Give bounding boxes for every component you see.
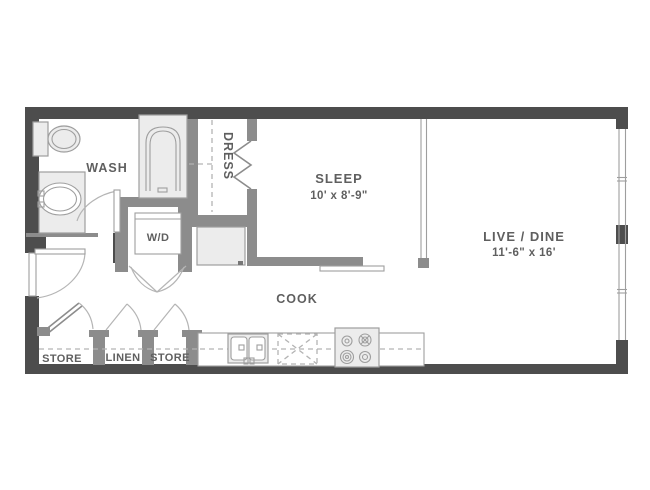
wall-dress-bottom (187, 215, 257, 227)
wall-right-mid-block (616, 225, 628, 244)
closet-post1 (93, 330, 105, 365)
wash-door-leaf (114, 190, 120, 232)
vanity-sink (38, 172, 85, 233)
kitchen (198, 328, 424, 367)
cook-label: COOK (276, 292, 318, 306)
toilet-tank (33, 122, 48, 156)
floorplan-page: WASH DRESS SLEEP 10' x 8'-9" LIVE / DINE… (0, 0, 650, 490)
wall-left-lower (25, 296, 39, 374)
wall-dress-right-lower (247, 189, 257, 258)
wall-top (25, 107, 628, 119)
sink-basin-outer (39, 183, 81, 215)
dress-bifold-door (234, 141, 251, 189)
entry-door-leaf-line2 (47, 306, 82, 334)
entry-door-leaf-line1 (44, 303, 79, 331)
wall-dress-right-upper (247, 119, 257, 141)
wall-right-top-corner (616, 107, 628, 129)
floorplan-drawing: WASH DRESS SLEEP 10' x 8'-9" LIVE / DINE… (0, 0, 650, 490)
stove (335, 328, 379, 367)
wd-door-leaf-left (129, 266, 157, 292)
toilet (33, 122, 80, 156)
washer-dryer-label: W/D (147, 232, 170, 244)
linen-door-arc (127, 304, 141, 330)
live-dine-label: LIVE / DINE (483, 229, 565, 244)
wash-label: WASH (86, 161, 128, 175)
store-right-label: STORE (150, 352, 190, 364)
sleep-sliding-door (320, 266, 384, 271)
bathtub (139, 115, 187, 198)
refrigerator (197, 227, 245, 265)
wall-divider-cap (418, 258, 429, 268)
sleep-label: SLEEP (315, 171, 363, 186)
store-right-door-arc (175, 304, 189, 330)
live-dine-dimensions: 11'-6" x 16' (492, 247, 556, 259)
wall-right-bottom-corner (616, 340, 628, 374)
hall-door-arc (37, 253, 85, 298)
dress-label: DRESS (221, 132, 235, 180)
wall-sleep-bottom (247, 257, 363, 266)
store-left-label: STORE (42, 353, 82, 365)
store-right-door-leaf (154, 304, 175, 330)
wd-door-leaf-right (157, 266, 186, 292)
linen-label: LINEN (106, 352, 141, 364)
fridge-box (197, 227, 245, 265)
linen-door-leaf (106, 304, 127, 330)
hall-door-leaf (35, 249, 85, 254)
fridge-handle (238, 261, 243, 265)
wall-bath-south (26, 233, 98, 237)
window-left-wall (29, 253, 36, 296)
sleep-dimensions: 10' x 8'-9" (310, 190, 368, 202)
kitchen-sink (228, 334, 268, 364)
